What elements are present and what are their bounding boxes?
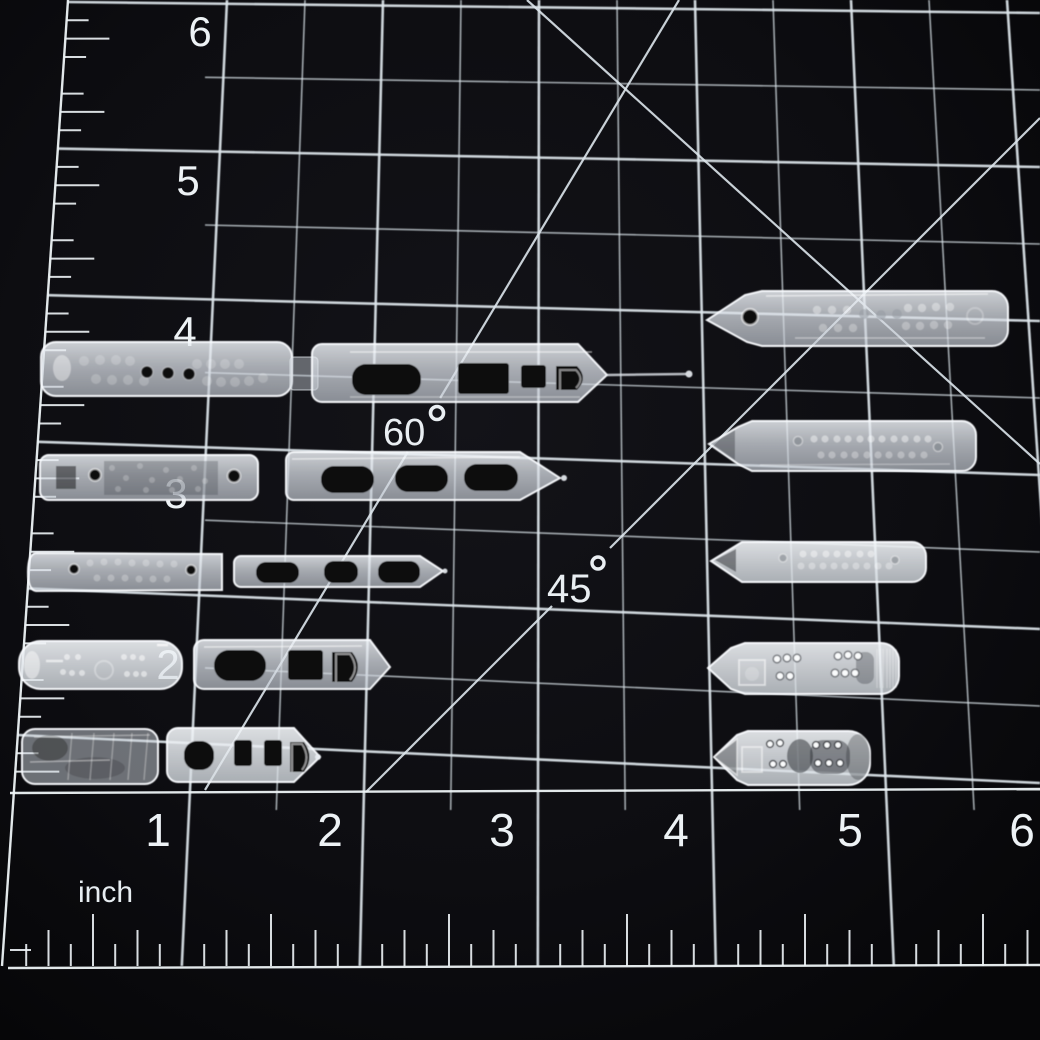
svg-text:5: 5 [176, 157, 199, 204]
svg-text:45: 45 [547, 567, 592, 611]
svg-text:6: 6 [188, 8, 211, 55]
svg-text:2: 2 [317, 804, 343, 856]
svg-text:inch: inch [78, 876, 133, 909]
svg-text:3: 3 [489, 804, 515, 856]
svg-text:60: 60 [383, 412, 425, 454]
svg-text:6: 6 [1009, 804, 1035, 856]
svg-text:5: 5 [837, 804, 863, 856]
svg-text:1: 1 [145, 804, 171, 856]
svg-text:4: 4 [663, 804, 689, 856]
